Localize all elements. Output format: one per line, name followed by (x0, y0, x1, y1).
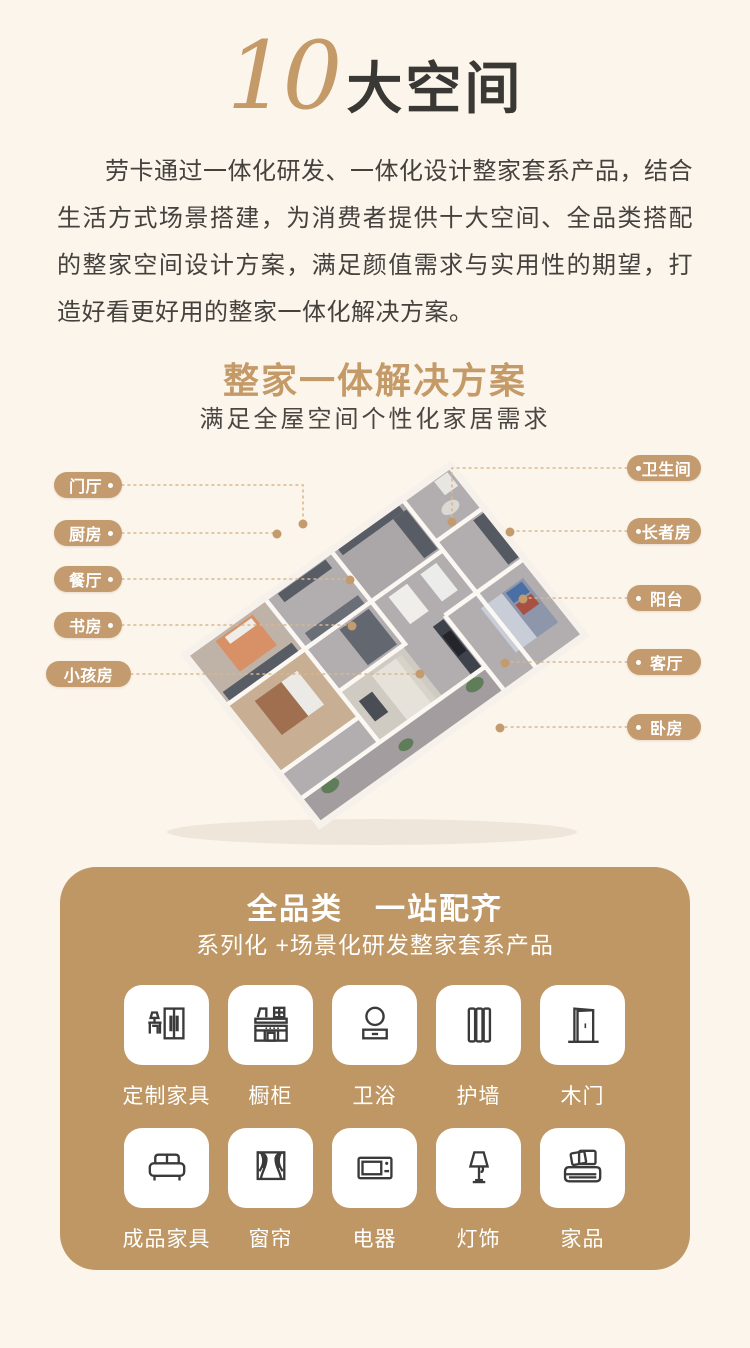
category-item: 成品家具 (124, 1128, 209, 1269)
category-item: 家品 (540, 1128, 625, 1269)
title-number: 10 (227, 30, 339, 124)
room-label-bathroom: 卫生间 (627, 455, 701, 481)
lamp-icon (454, 1143, 504, 1193)
room-label-dining: 餐厅 (54, 566, 122, 592)
category-label: 家品 (561, 1223, 605, 1253)
category-card (332, 1128, 417, 1208)
category-card (540, 1128, 625, 1208)
category-label: 卫浴 (353, 1080, 397, 1110)
pill-dot (108, 623, 113, 628)
category-card (540, 985, 625, 1065)
room-label-living-room: 客厅 (627, 649, 701, 675)
category-item: 定制家具 (124, 985, 209, 1126)
title-text: 大空间 (346, 44, 523, 125)
floorplan-section: 门厅 厨房 餐厅 书房 小孩房 卫生间 长者房 阳台 (0, 440, 750, 852)
curtain-icon (246, 1143, 296, 1193)
room-label-text: 书房 (63, 613, 108, 637)
page-title: 10 大空间 (0, 30, 750, 125)
promo-page: 10 大空间 劳卡通过一体化研发、一体化设计整家套系产品，结合生活方式场景搭建，… (0, 0, 750, 1348)
category-label: 电器 (353, 1223, 397, 1253)
wardrobe-desk-icon (142, 1000, 192, 1050)
room-label-text: 门厅 (63, 473, 108, 497)
category-label: 橱柜 (249, 1080, 293, 1110)
room-label-text: 小孩房 (55, 662, 122, 686)
solution-subtitle: 满足全屋空间个性化家居需求 (0, 399, 750, 434)
room-label-text: 长者房 (641, 519, 692, 543)
category-label: 窗帘 (249, 1223, 293, 1253)
room-label-text: 厨房 (63, 521, 108, 545)
room-label-text: 卫生间 (641, 456, 692, 480)
pill-dot (108, 531, 113, 536)
category-label: 护墙 (457, 1080, 501, 1110)
pill-dot (108, 577, 113, 582)
room-label-text: 卧房 (641, 715, 692, 739)
intro-paragraph: 劳卡通过一体化研发、一体化设计整家套系产品，结合生活方式场景搭建，为消费者提供十… (57, 148, 693, 336)
category-card (436, 1128, 521, 1208)
room-label-kids-room: 小孩房 (46, 661, 131, 687)
category-title: 全品类 一站配齐 (60, 884, 690, 928)
bath-mirror-icon (350, 1000, 400, 1050)
wall-panel-icon (454, 1000, 504, 1050)
category-card (436, 985, 521, 1065)
leader-lines (0, 440, 750, 852)
category-label: 定制家具 (123, 1080, 211, 1110)
category-item: 橱柜 (228, 985, 313, 1126)
room-label-balcony: 阳台 (627, 585, 701, 611)
category-label: 木门 (561, 1080, 605, 1110)
room-label-kitchen: 厨房 (54, 520, 122, 546)
microwave-icon (350, 1143, 400, 1193)
category-item: 卫浴 (332, 985, 417, 1126)
category-label: 灯饰 (457, 1223, 501, 1253)
bedding-icon (558, 1143, 608, 1193)
category-label: 成品家具 (123, 1223, 211, 1253)
category-subtitle: 系列化 +场景化研发整家套系产品 (60, 926, 690, 960)
kitchen-cabinet-icon (246, 1000, 296, 1050)
room-label-text: 阳台 (641, 586, 692, 610)
wood-door-icon (558, 1000, 608, 1050)
room-label-bedroom: 卧房 (627, 714, 701, 740)
category-card (228, 985, 313, 1065)
category-card (332, 985, 417, 1065)
category-item: 护墙 (436, 985, 521, 1126)
category-card (228, 1128, 313, 1208)
category-item: 电器 (332, 1128, 417, 1269)
category-item: 灯饰 (436, 1128, 521, 1269)
sofa-icon (142, 1143, 192, 1193)
solution-title: 整家一体解决方案 (0, 352, 750, 404)
category-panel: 全品类 一站配齐 系列化 +场景化研发整家套系产品 定制家具 (60, 867, 690, 1270)
category-item: 木门 (540, 985, 625, 1126)
category-card (124, 985, 209, 1065)
room-label-text: 餐厅 (63, 567, 108, 591)
category-grid: 定制家具 (124, 985, 625, 1269)
room-label-entry: 门厅 (54, 472, 122, 498)
room-label-study: 书房 (54, 612, 122, 638)
category-item: 窗帘 (228, 1128, 313, 1269)
room-label-text: 客厅 (641, 650, 692, 674)
pill-dot (108, 483, 113, 488)
room-label-elder-room: 长者房 (627, 518, 701, 544)
category-card (124, 1128, 209, 1208)
